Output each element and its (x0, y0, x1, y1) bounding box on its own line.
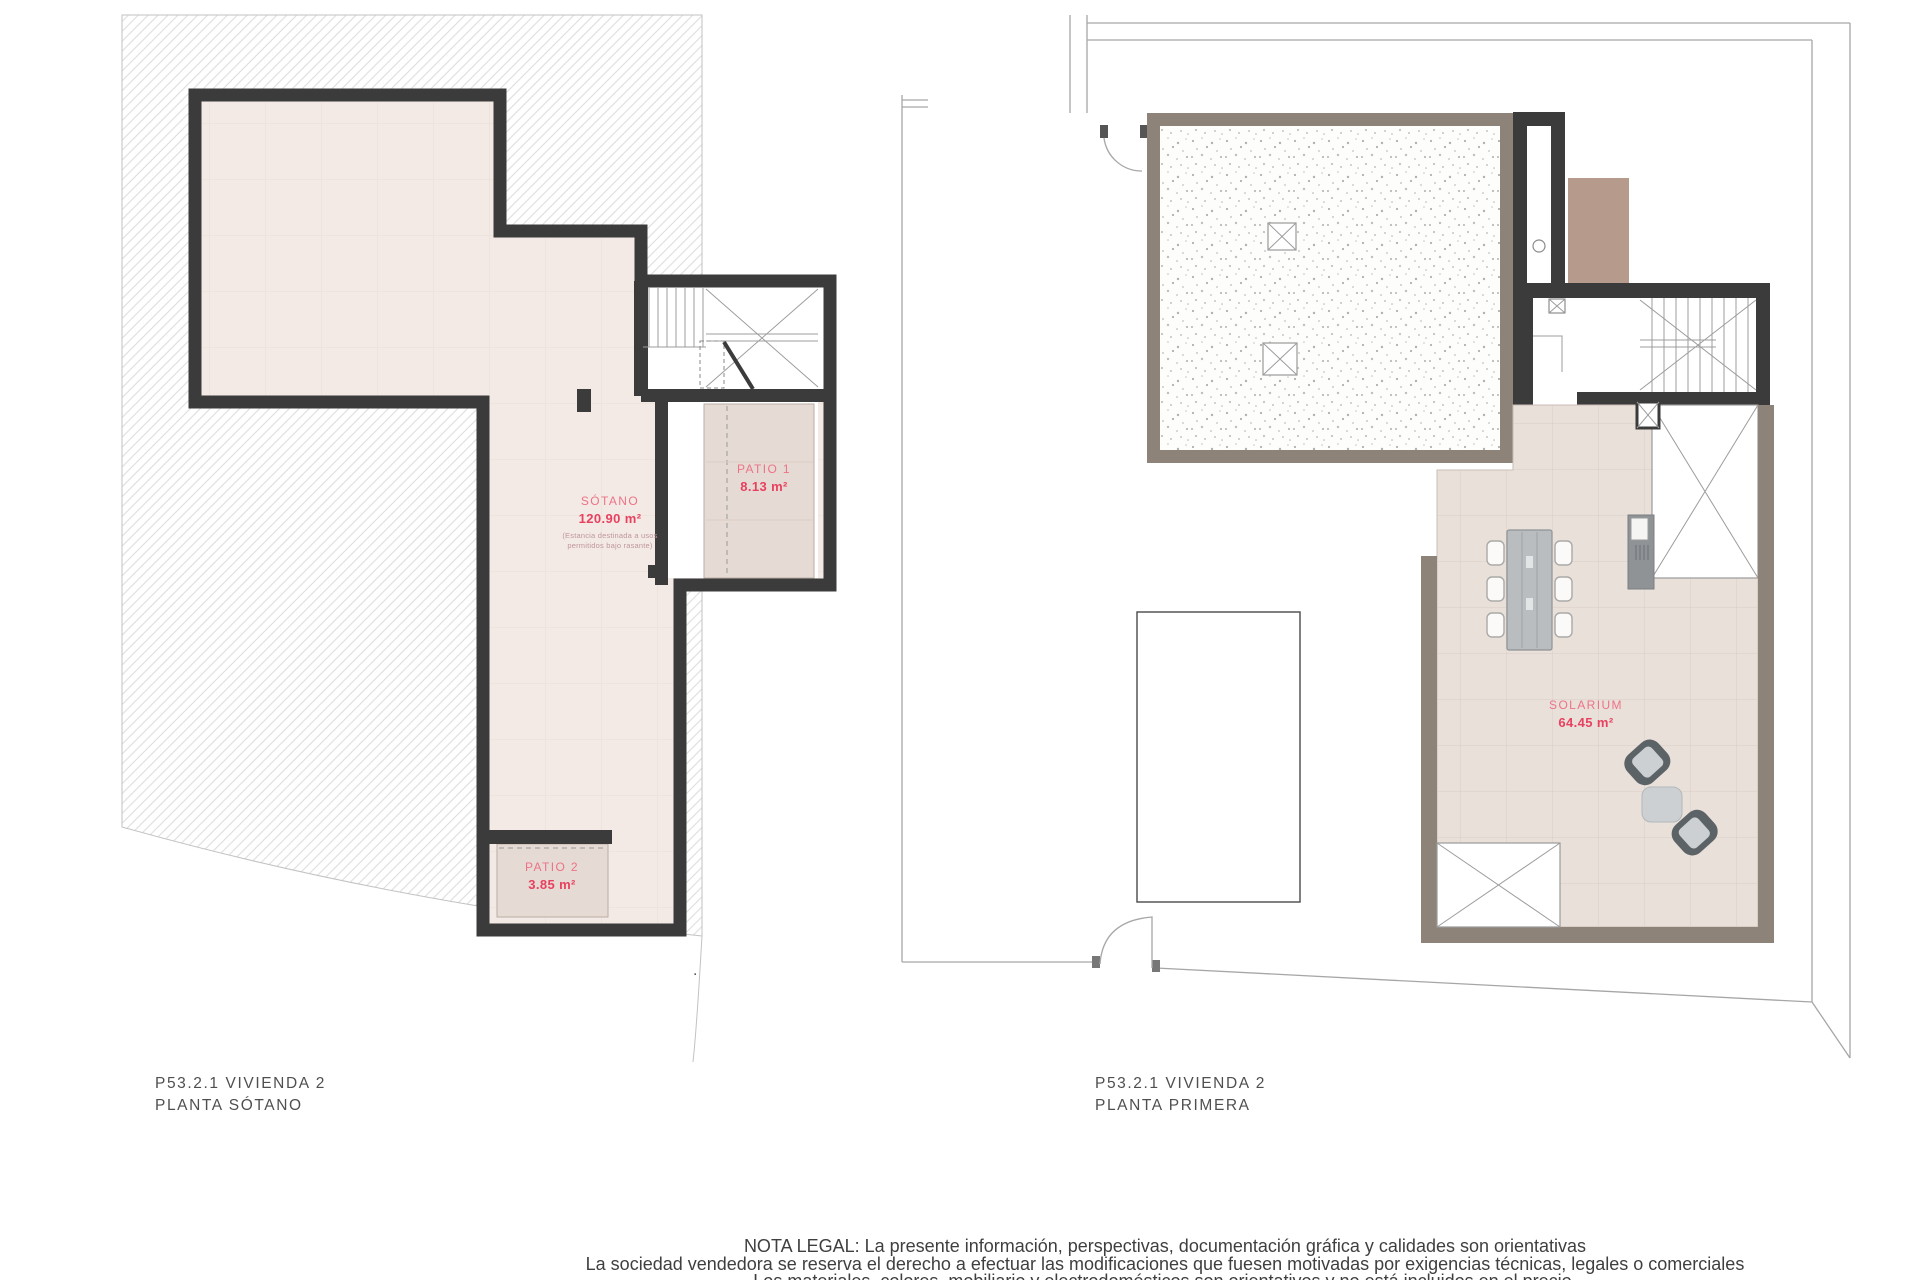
stair-core (1513, 112, 1565, 298)
gate-door (1092, 917, 1160, 972)
stair-skylight-void (1652, 405, 1758, 578)
gravel-roof (1147, 113, 1513, 463)
skylight-box (1263, 343, 1297, 375)
right-plan: SOLARIUM 64.45 m² P53.2.1 VIVIENDA 2 PLA… (902, 15, 1850, 1114)
solarium-name: SOLARIUM (1549, 698, 1623, 712)
counter-bbq (1628, 515, 1654, 589)
pillar (577, 389, 591, 412)
side-table (1642, 787, 1682, 822)
left-plan-title-line2: PLANTA SÓTANO (155, 1097, 303, 1114)
right-plan-title-line1: P53.2.1 VIVIENDA 2 (1095, 1075, 1266, 1092)
skylight-box (1268, 223, 1296, 250)
small-skylight-box (1637, 402, 1659, 428)
chair (1555, 541, 1572, 565)
chair (1487, 577, 1504, 601)
floorplans-drawing: SÓTANO 120.90 m² (Estancia destinada a u… (0, 0, 1920, 1280)
stair-area (643, 287, 824, 389)
pillar (648, 565, 667, 578)
sotano-note-2: permitidos bajo rasante) (567, 541, 653, 550)
chair (1487, 613, 1504, 637)
dining-set (1487, 530, 1572, 650)
sotano-name: SÓTANO (581, 493, 639, 508)
legal-line-1: NOTA LEGAL: La presente información, per… (744, 1236, 1586, 1256)
dining-table (1507, 530, 1552, 650)
patio2-name: PATIO 2 (525, 860, 579, 874)
patio1-name: PATIO 1 (737, 462, 791, 476)
separator-dot: . (693, 962, 697, 979)
pool-outline (1137, 612, 1300, 902)
plan-sheet: SÓTANO 120.90 m² (Estancia destinada a u… (0, 0, 1920, 1280)
left-plan: SÓTANO 120.90 m² (Estancia destinada a u… (122, 15, 830, 1114)
right-plan-title-line2: PLANTA PRIMERA (1095, 1097, 1251, 1114)
left-plan-title-line1: P53.2.1 VIVIENDA 2 (155, 1075, 326, 1092)
patio1-area: 8.13 m² (740, 479, 788, 494)
legal-line-3: Los materiales, colores, mobiliario y el… (753, 1271, 1576, 1280)
site-boundary-extension (693, 936, 702, 1062)
chair (1555, 577, 1572, 601)
solarium-area: 64.45 m² (1558, 715, 1614, 730)
legal-note: NOTA LEGAL: La presente información, per… (586, 1236, 1745, 1280)
sotano-note-1: (Estancia destinada a usos (562, 531, 657, 540)
chair (1487, 541, 1504, 565)
elevator-box (1568, 178, 1629, 283)
patio2-area: 3.85 m² (528, 877, 576, 892)
corner-skylight-box (1437, 843, 1560, 927)
sotano-area: 120.90 m² (579, 511, 642, 526)
entry-door (1100, 125, 1148, 171)
chair (1555, 613, 1572, 637)
